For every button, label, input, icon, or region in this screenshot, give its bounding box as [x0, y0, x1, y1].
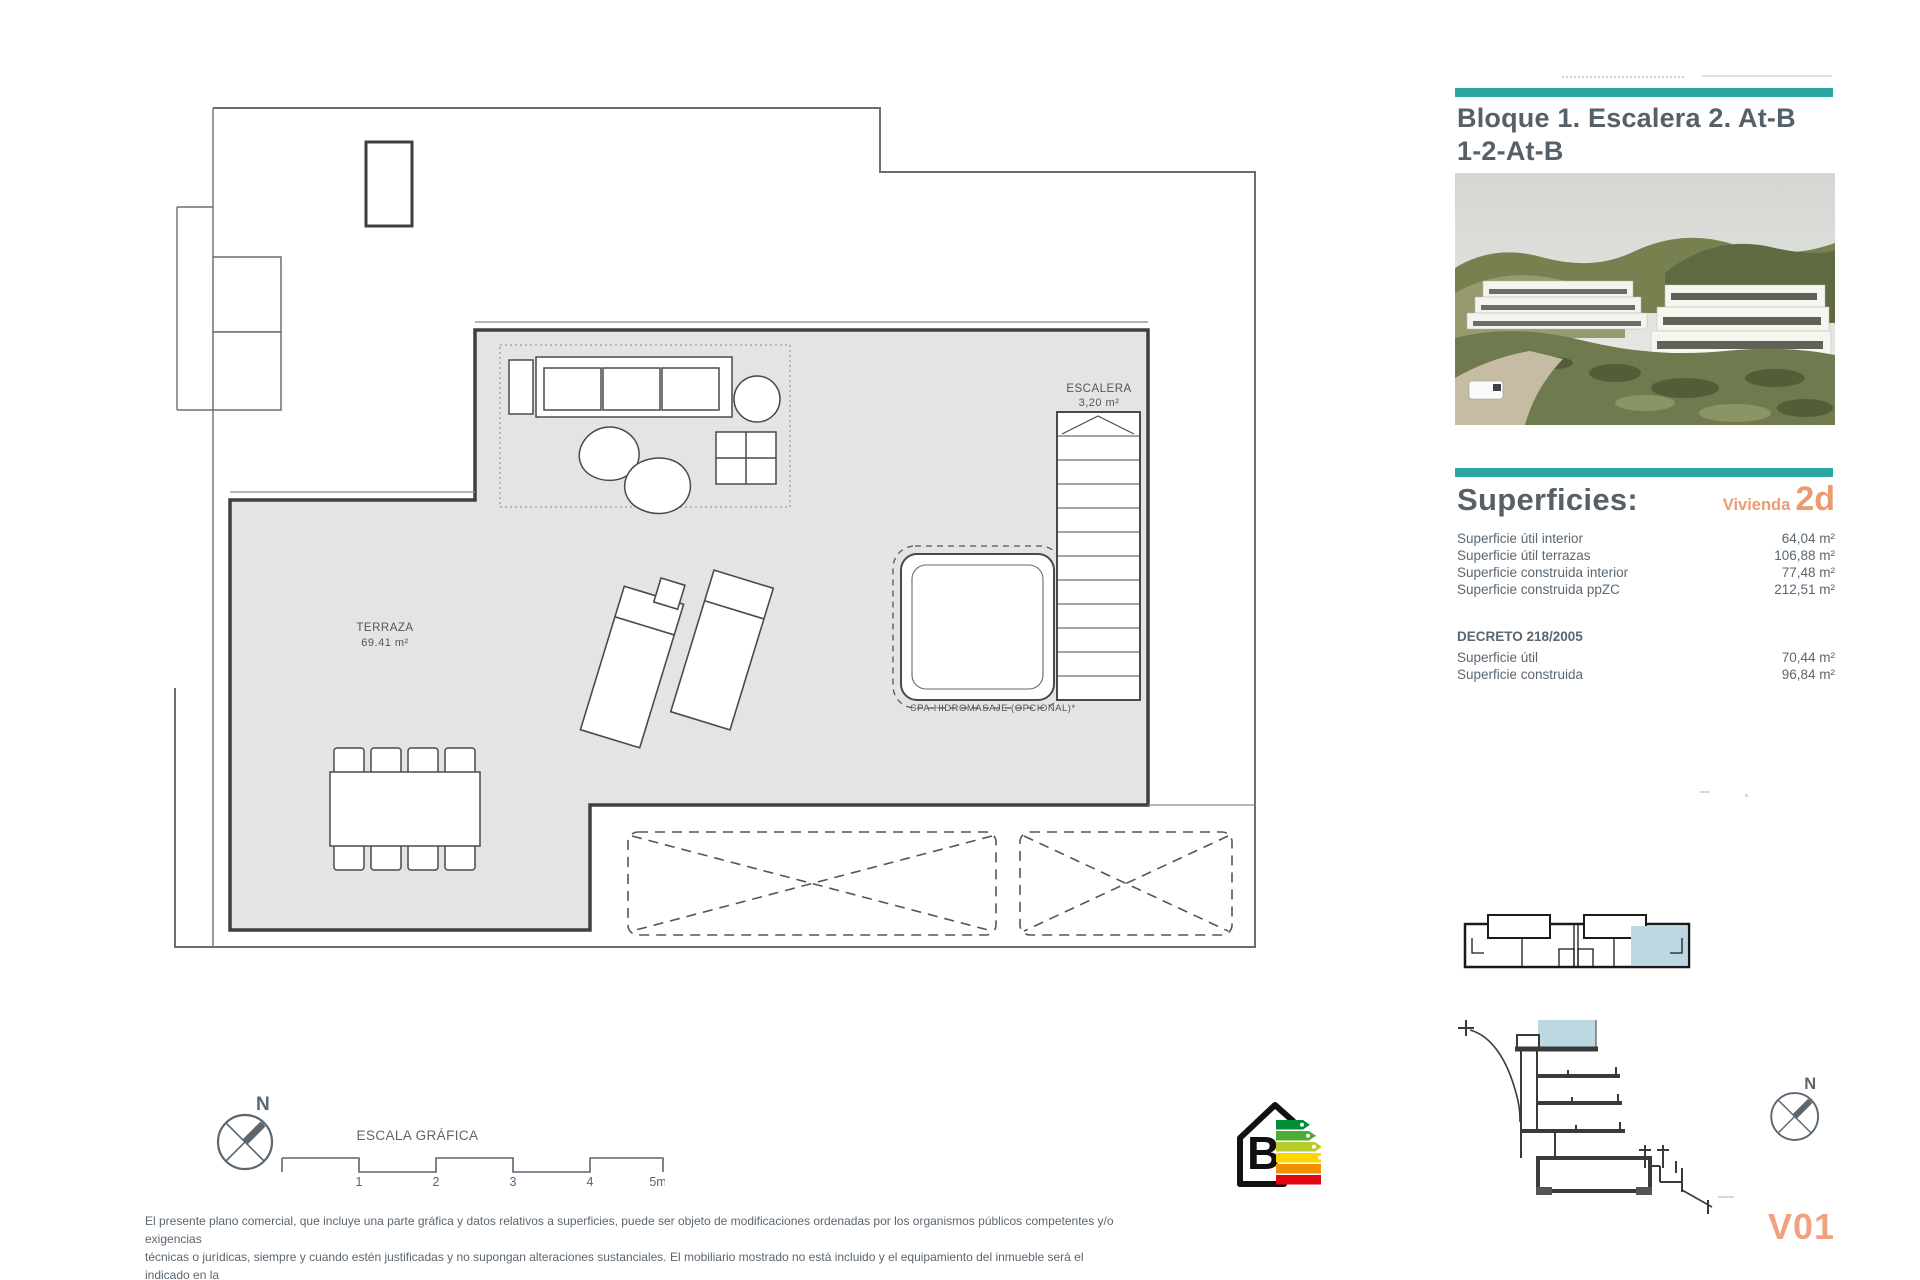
- superficies-accent-bar: [1455, 468, 1833, 477]
- building-render-photo: [1455, 173, 1835, 425]
- scale-tick: 4: [587, 1175, 594, 1189]
- floor-plan: TERRAZA 69.41 m² ESCALERA 3,20 m² SPA-HI…: [160, 95, 1270, 960]
- terraza-area: 69.41 m²: [361, 637, 408, 649]
- smudge: [1718, 1196, 1734, 1198]
- plan-version: V01: [1768, 1206, 1835, 1248]
- highlighted-level: [1538, 1020, 1596, 1049]
- row-value: 212,51 m²: [1774, 581, 1835, 598]
- north-compass: N: [1760, 1072, 1838, 1148]
- table-row: Superficie útil terrazas 106,88 m²: [1457, 547, 1835, 564]
- row-label: Superficie construida interior: [1457, 564, 1628, 581]
- north-label: N: [1804, 1075, 1816, 1093]
- escalera-area: 3,20 m²: [1079, 397, 1120, 409]
- row-label: Superficie construida ppZC: [1457, 581, 1620, 598]
- scale-tick: 1: [356, 1175, 363, 1189]
- vivienda-code: 2d: [1795, 482, 1835, 516]
- scale-tick: 3: [510, 1175, 517, 1189]
- scale-tick: 5m: [649, 1175, 665, 1189]
- table-row: Superficie construida ppZC 212,51 m²: [1457, 581, 1835, 598]
- escalera-label: ESCALERA: [1066, 383, 1131, 395]
- table-row: Superficie construida interior 77,48 m²: [1457, 564, 1835, 581]
- row-value: 64,04 m²: [1782, 530, 1835, 547]
- row-label: Superficie útil: [1457, 649, 1538, 666]
- row-label: Superficie útil interior: [1457, 530, 1583, 547]
- scale-bar-title: ESCALA GRÁFICA: [300, 1128, 535, 1143]
- row-value: 96,84 m²: [1782, 666, 1835, 683]
- title-line1: Bloque 1. Escalera 2. At-B: [1457, 102, 1837, 135]
- smudge: [1700, 791, 1710, 793]
- disclaimer-line: técnicas o jurídicas, siempre y cuando e…: [145, 1248, 1125, 1280]
- row-label: Superficie útil terrazas: [1457, 547, 1591, 564]
- dashed-boxes: [628, 832, 1232, 935]
- scale-tick: 2: [433, 1175, 440, 1189]
- faded-letterhead-right: [1702, 75, 1832, 77]
- decreto-table: DECRETO 218/2005 Superficie útil 70,44 m…: [1457, 628, 1835, 683]
- decreto-heading: DECRETO 218/2005: [1457, 628, 1835, 645]
- spa: [893, 546, 1062, 708]
- stairs: [1057, 412, 1140, 700]
- vivienda-tag: Vivienda 2d: [1723, 482, 1835, 516]
- table-row: Superficie construida 96,84 m²: [1457, 666, 1835, 683]
- row-label: Superficie construida: [1457, 666, 1583, 683]
- smudge: [1745, 794, 1748, 797]
- highlighted-unit: [1631, 926, 1687, 965]
- terraza-label: TERRAZA: [356, 622, 413, 634]
- round-table: [734, 376, 780, 422]
- row-value: 106,88 m²: [1774, 547, 1835, 564]
- table-row: Superficie útil 70,44 m²: [1457, 649, 1835, 666]
- dining-table: [330, 772, 480, 846]
- legal-disclaimer: El presente plano comercial, que incluye…: [145, 1212, 1125, 1280]
- row-value: 77,48 m²: [1782, 564, 1835, 581]
- scale-bar: 1 2 3 4 5m: [280, 1148, 665, 1190]
- energy-rating-letter: B: [1247, 1127, 1280, 1179]
- plan-sheet: TERRAZA 69.41 m² ESCALERA 3,20 m² SPA-HI…: [0, 0, 1920, 1280]
- left-roof-boxes: [213, 257, 281, 410]
- spa-label: SPA-HIDROMASAJE (OPCIONAL)*: [910, 703, 1075, 714]
- chimney-block: [366, 142, 412, 226]
- section-diagram: [1420, 998, 1720, 1243]
- energy-rating-icon: B: [1226, 1090, 1321, 1190]
- superficies-table: Superficie útil interior 64,04 m² Superf…: [1457, 530, 1835, 598]
- north-label: N: [256, 1094, 270, 1115]
- vivienda-label: Vivienda: [1723, 496, 1791, 515]
- row-value: 70,44 m²: [1782, 649, 1835, 666]
- energy-bars: [1276, 1120, 1321, 1185]
- superficies-heading: Superficies:: [1457, 482, 1638, 518]
- header-accent-bar: [1455, 88, 1833, 97]
- key-plan: [1462, 913, 1692, 971]
- disclaimer-line: El presente plano comercial, que incluye…: [145, 1212, 1125, 1248]
- faded-letterhead-left: [1562, 76, 1684, 78]
- title-line2: 1-2-At-B: [1457, 135, 1837, 168]
- table-row: Superficie útil interior 64,04 m²: [1457, 530, 1835, 547]
- page-title: Bloque 1. Escalera 2. At-B 1-2-At-B: [1457, 102, 1837, 169]
- organic-blob: [625, 458, 691, 514]
